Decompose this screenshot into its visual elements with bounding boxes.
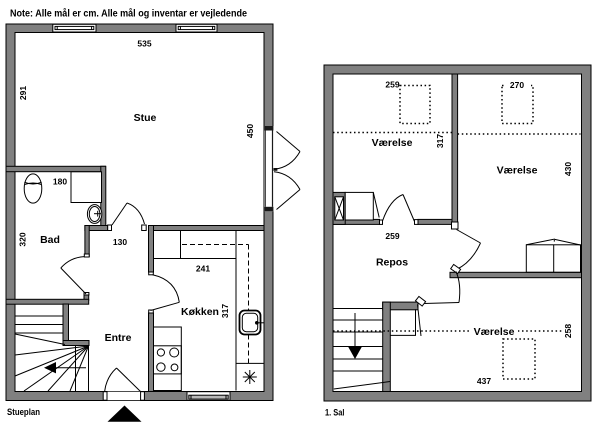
svg-text:Repos: Repos [376, 256, 408, 268]
svg-text:259: 259 [385, 231, 399, 241]
svg-text:Note: Alle mål er cm. Alle mål: Note: Alle mål er cm. Alle mål og invent… [10, 8, 247, 20]
svg-text:437: 437 [477, 376, 491, 386]
svg-text:450: 450 [245, 124, 255, 138]
svg-text:291: 291 [18, 86, 28, 100]
svg-text:535: 535 [137, 38, 151, 48]
svg-text:Bad: Bad [40, 234, 60, 246]
svg-text:Stue: Stue [134, 112, 157, 124]
svg-text:317: 317 [435, 134, 445, 148]
svg-text:259: 259 [385, 80, 399, 90]
svg-text:1. Sal: 1. Sal [325, 408, 345, 419]
svg-text:317: 317 [220, 304, 230, 318]
svg-text:Værelse: Værelse [497, 164, 538, 176]
svg-text:130: 130 [113, 237, 127, 247]
svg-text:320: 320 [18, 232, 28, 246]
svg-text:Køkken: Køkken [181, 306, 219, 318]
svg-text:241: 241 [196, 264, 210, 274]
svg-text:430: 430 [563, 162, 573, 176]
svg-text:270: 270 [510, 80, 524, 90]
svg-text:180: 180 [53, 177, 67, 187]
svg-text:Stueplan: Stueplan [7, 407, 40, 418]
svg-text:Entre: Entre [105, 332, 132, 344]
svg-text:258: 258 [563, 324, 573, 338]
svg-text:Værelse: Værelse [474, 326, 515, 338]
svg-text:Værelse: Værelse [372, 137, 413, 149]
